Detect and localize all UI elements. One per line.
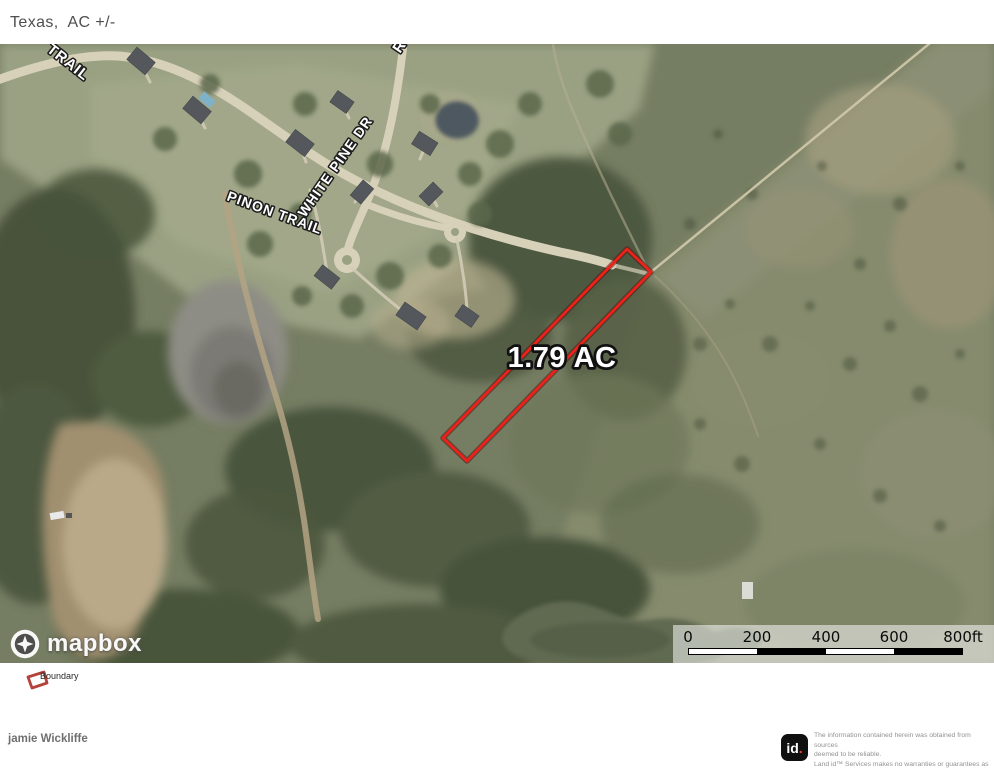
mapbox-logo-icon (10, 629, 40, 659)
mapbox-wordmark: mapbox (47, 630, 142, 658)
parcel-area-label: 1.79 AC (508, 342, 617, 374)
scale-tick-200: 200 (743, 628, 772, 646)
disclaimer-text: The information contained herein was obt… (814, 731, 990, 768)
land-id-map-report: Texas, AC +/- (0, 0, 994, 768)
mapbox-attribution[interactable]: mapbox (10, 629, 142, 659)
scale-rule (688, 648, 963, 655)
scale-bar-segment (826, 649, 894, 654)
legend: Boundary (0, 663, 994, 708)
scale-tick-600: 600 (880, 628, 909, 646)
land-id-logo-dot: . (799, 740, 803, 756)
scale-bar-segment (757, 649, 825, 654)
dock (742, 582, 753, 599)
disclaimer-line: deemed to be reliable. (814, 750, 990, 760)
satellite-map: TRAIL PINON TRAIL WHITE PINE DR R 1.79 A… (0, 44, 994, 663)
author-name: jamie Wickliffe (8, 733, 88, 745)
disclaimer-line: Land id™ Services makes no warranties or… (814, 760, 990, 768)
scale-bar-segment (894, 649, 962, 654)
land-id-logo-text: id (786, 740, 798, 756)
disclaimer-line: The information contained herein was obt… (814, 731, 990, 750)
scale-tick-0: 0 (683, 628, 693, 646)
scale-bar-segment (689, 649, 757, 654)
scale-tick-800: 800ft (943, 628, 983, 646)
header: Texas, AC +/- (0, 0, 994, 44)
map-canvas: TRAIL PINON TRAIL WHITE PINE DR R 1.79 A… (0, 44, 994, 663)
page-title: Texas, AC +/- (10, 14, 116, 32)
legend-item-label: Boundary (40, 671, 79, 681)
land-id-logo: id. (781, 734, 808, 761)
map-scale-bar: 0 200 400 600 800ft (673, 625, 994, 663)
scale-tick-400: 400 (812, 628, 841, 646)
